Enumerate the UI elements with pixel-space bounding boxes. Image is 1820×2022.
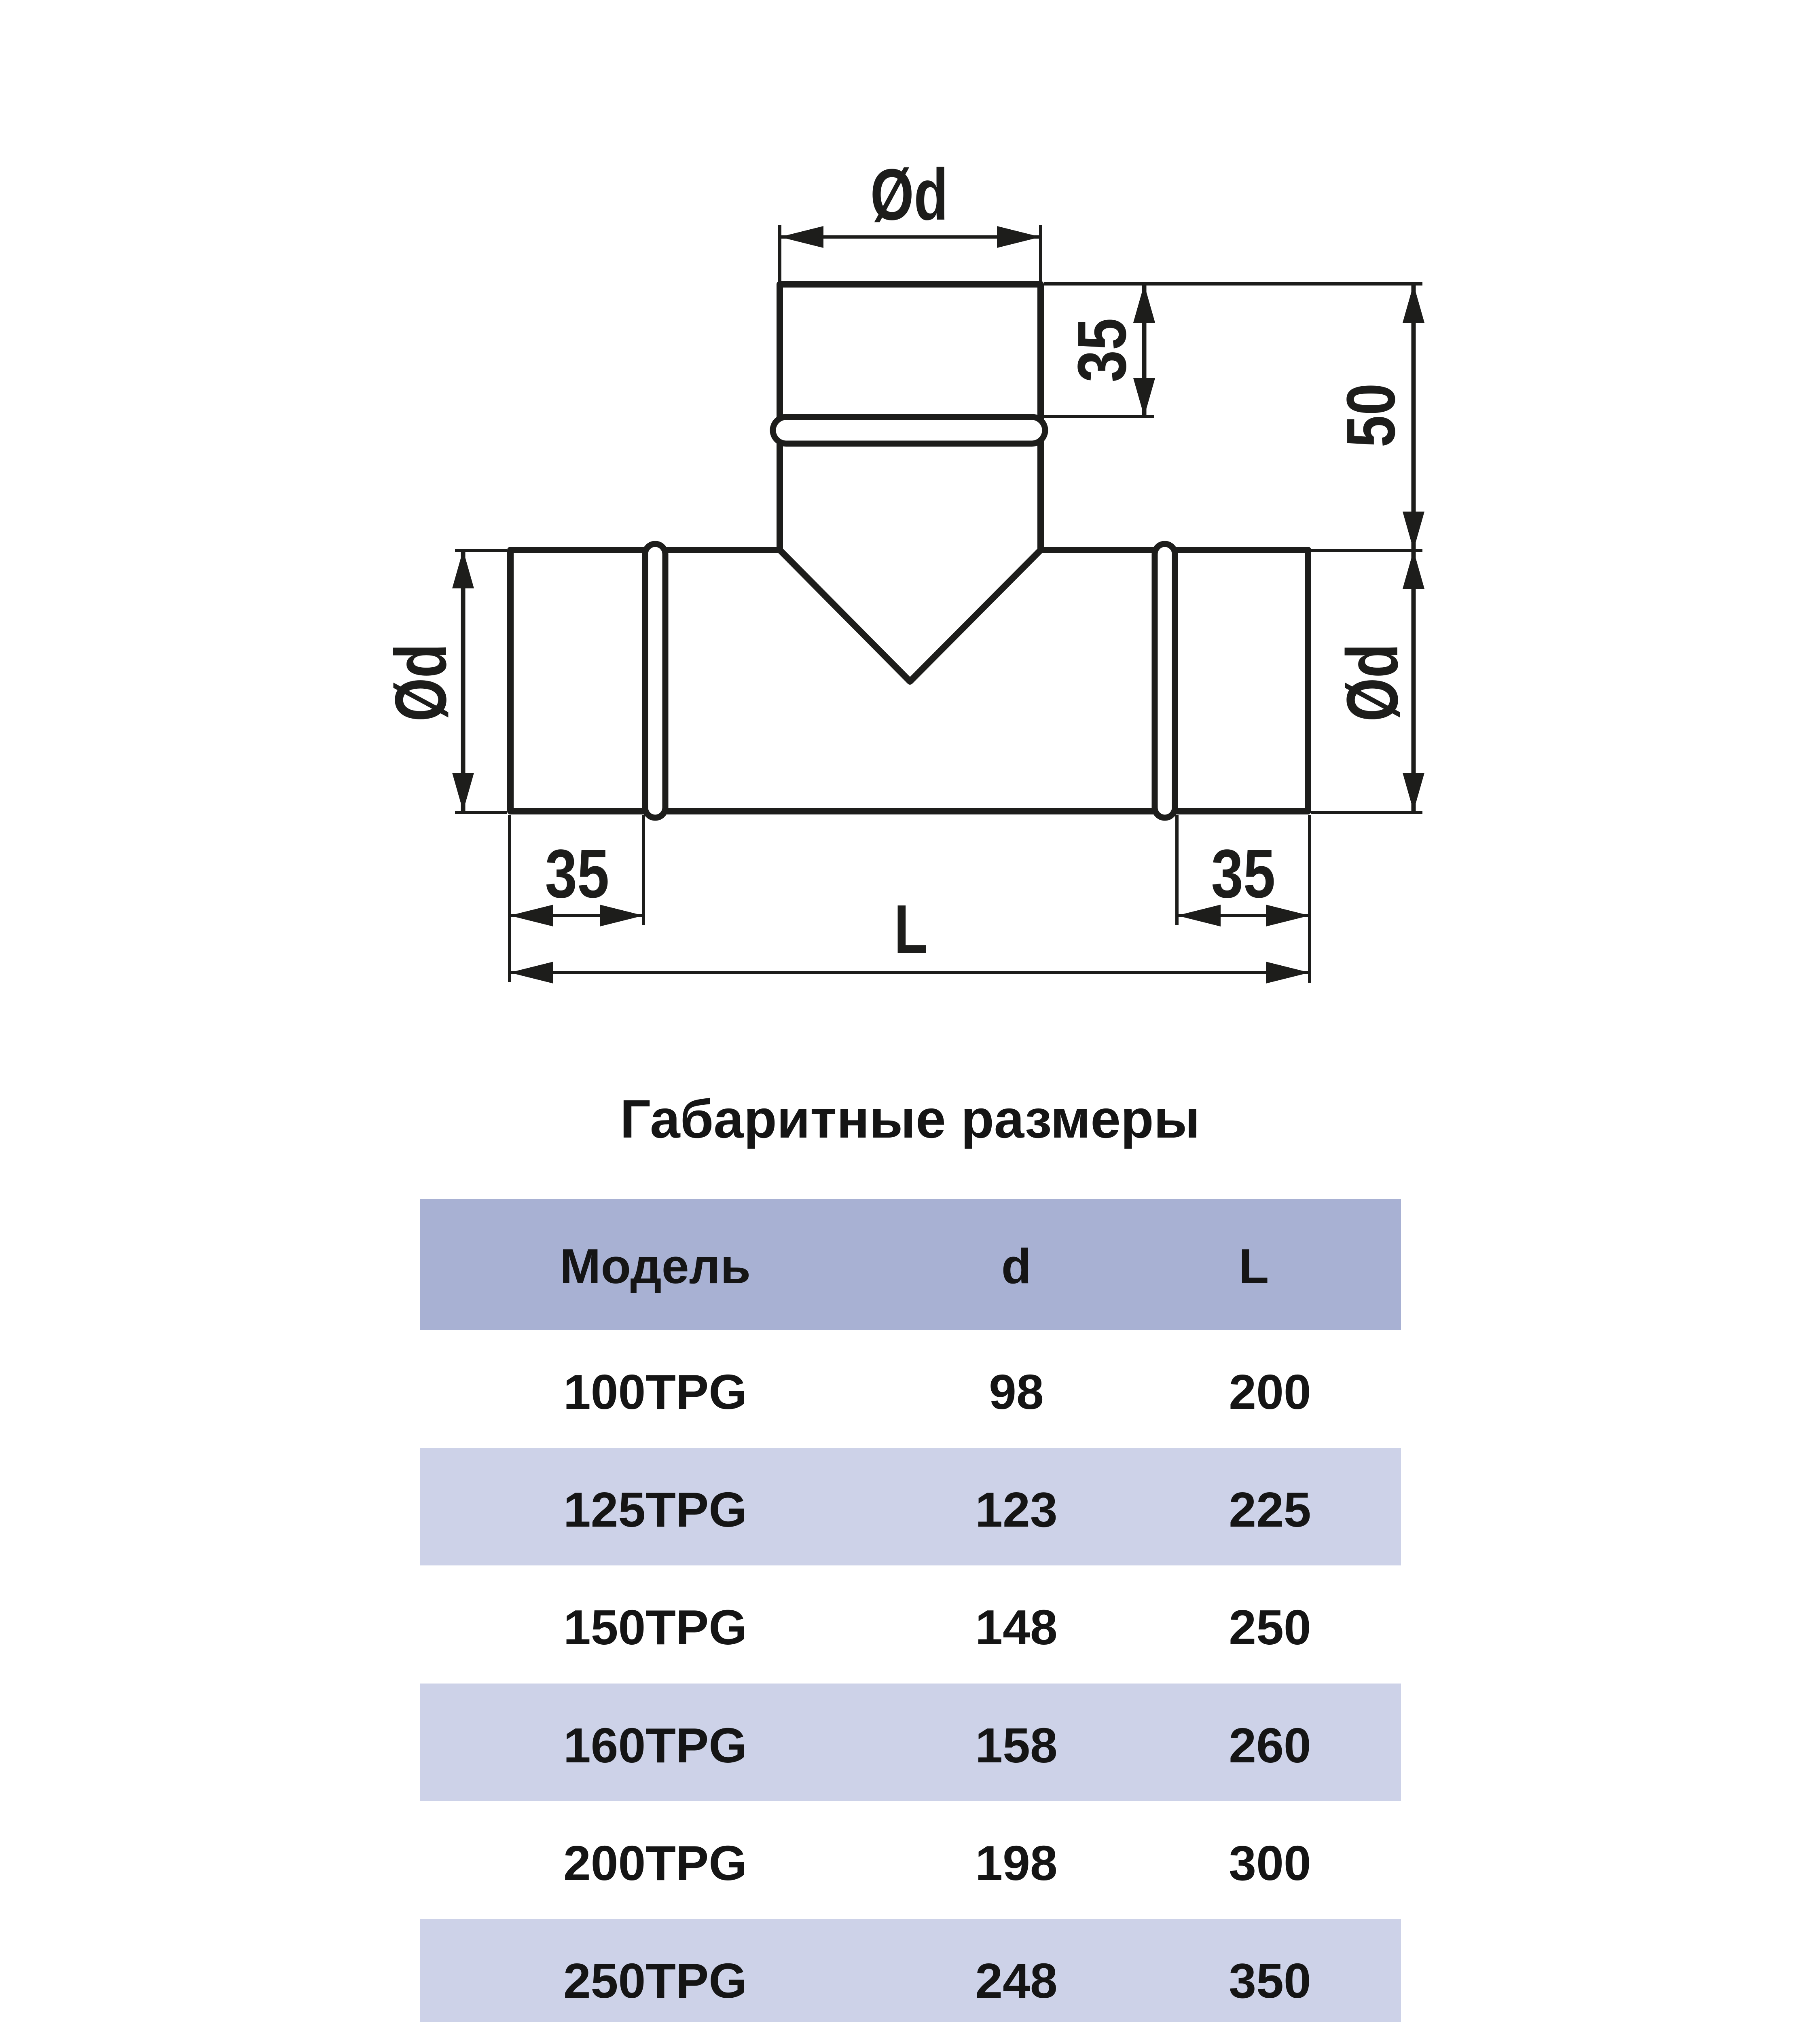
svg-text:L: L <box>894 891 927 968</box>
svg-text:35: 35 <box>545 835 609 912</box>
svg-text:Ød: Ød <box>381 644 462 721</box>
svg-text:Ød: Ød <box>1332 644 1414 721</box>
svg-text:35: 35 <box>1064 318 1141 383</box>
svg-text:35: 35 <box>1211 835 1276 912</box>
svg-text:Ød: Ød <box>870 154 948 236</box>
svg-text:50: 50 <box>1333 383 1409 448</box>
